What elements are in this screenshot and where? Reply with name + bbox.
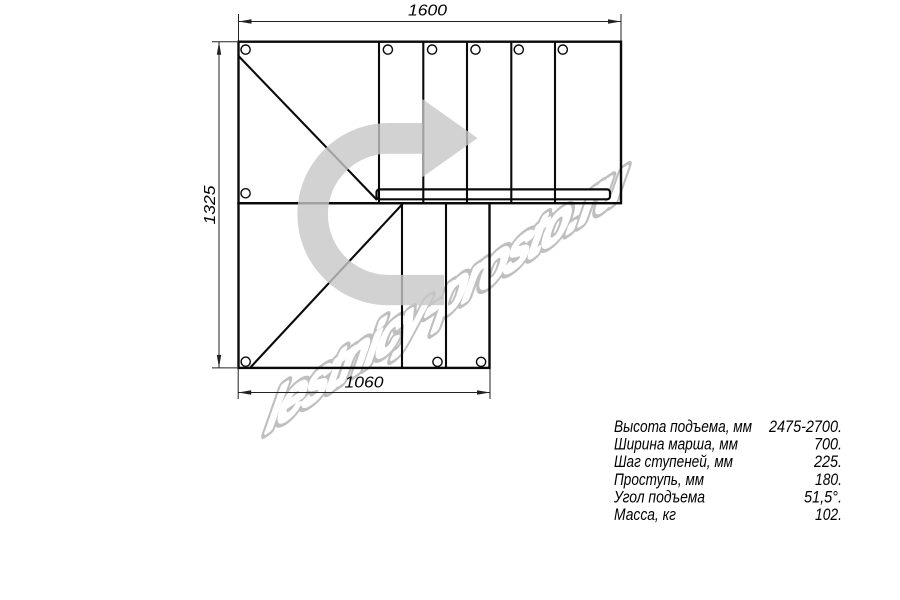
svg-text:1325: 1325 bbox=[202, 185, 219, 224]
svg-text:700.: 700. bbox=[814, 436, 842, 454]
svg-text:Угол подъема: Угол подъема bbox=[613, 488, 705, 506]
svg-text:225.: 225. bbox=[813, 453, 842, 471]
svg-text:102.: 102. bbox=[815, 506, 842, 524]
svg-text:Масса, кг: Масса, кг bbox=[614, 506, 676, 524]
svg-text:51,5°.: 51,5°. bbox=[804, 488, 842, 506]
svg-text:Шаг ступеней, мм: Шаг ступеней, мм bbox=[614, 453, 733, 471]
svg-text:2475-2700.: 2475-2700. bbox=[768, 418, 842, 436]
svg-text:1060: 1060 bbox=[345, 374, 384, 391]
svg-text:Проступь, мм: Проступь, мм bbox=[614, 471, 704, 489]
svg-text:1600: 1600 bbox=[408, 3, 447, 20]
svg-text:Высота подъема, мм: Высота подъема, мм bbox=[614, 418, 752, 436]
svg-text:180.: 180. bbox=[815, 471, 842, 489]
svg-text:Ширина марша, мм: Ширина марша, мм bbox=[614, 436, 738, 454]
